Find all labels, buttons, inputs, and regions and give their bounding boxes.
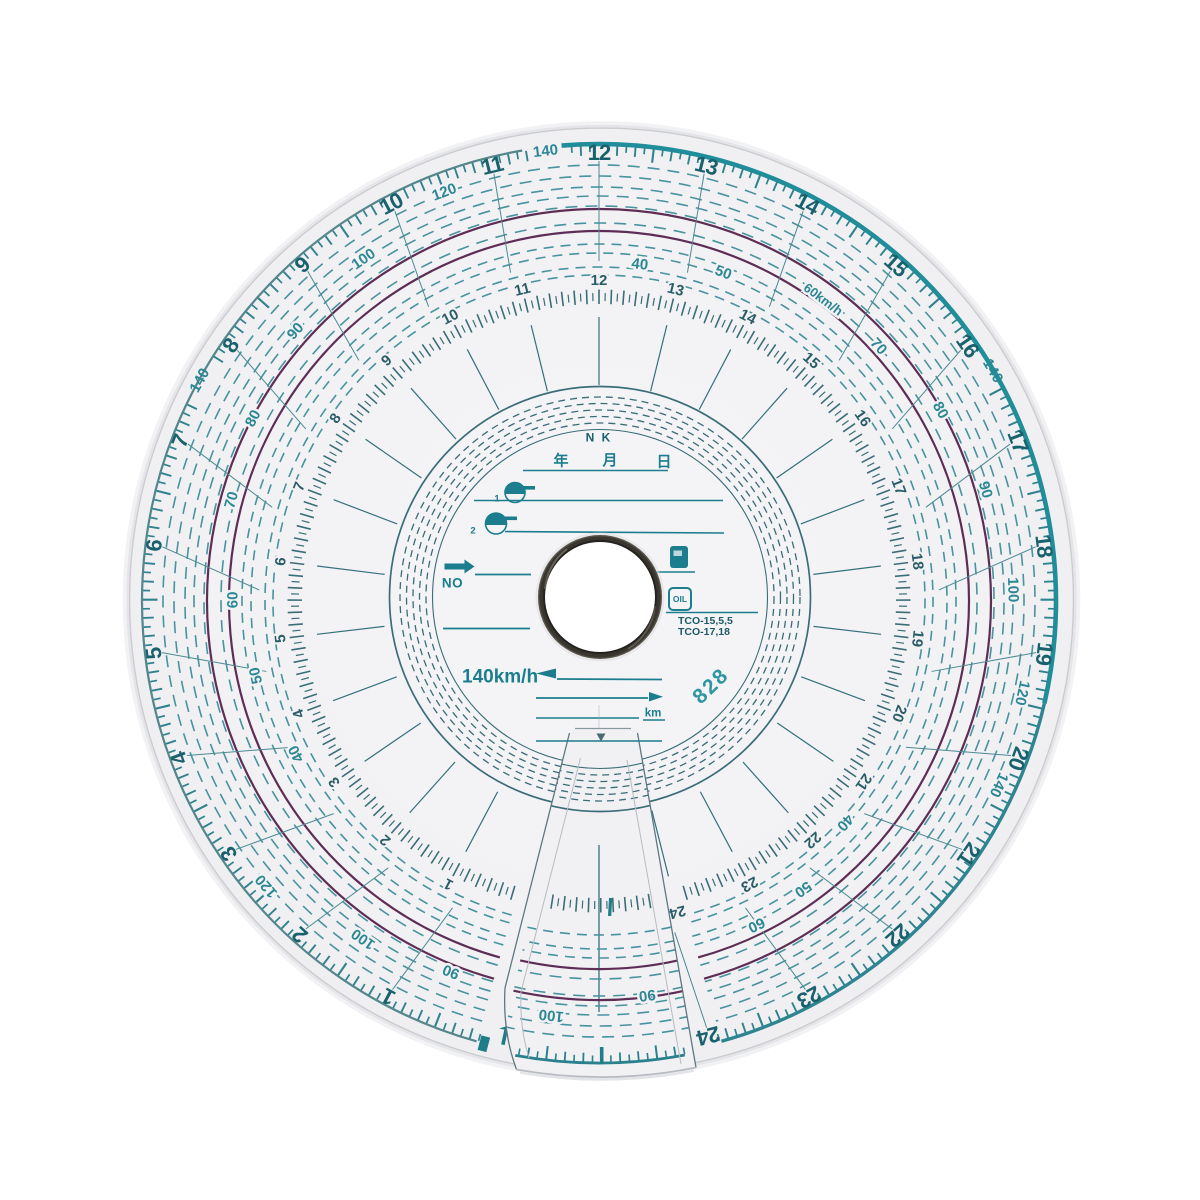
svg-text:km: km — [645, 708, 662, 720]
svg-text:OIL: OIL — [673, 594, 687, 604]
svg-text:60: 60 — [224, 592, 241, 609]
svg-text:NO: NO — [442, 576, 463, 591]
svg-text:50: 50 — [246, 666, 266, 686]
svg-text:年: 年 — [553, 452, 568, 470]
svg-text:100: 100 — [538, 1005, 565, 1025]
svg-text:19: 19 — [1031, 641, 1059, 667]
svg-text:TCO-17,18: TCO-17,18 — [678, 626, 730, 638]
svg-text:40: 40 — [630, 255, 649, 274]
svg-text:19: 19 — [908, 629, 927, 648]
svg-text:N K: N K — [586, 431, 613, 445]
svg-text:12: 12 — [591, 272, 608, 289]
svg-text:100: 100 — [1004, 577, 1022, 602]
svg-text:18: 18 — [1030, 533, 1058, 559]
svg-text:日: 日 — [656, 454, 671, 471]
svg-text:月: 月 — [601, 452, 617, 469]
svg-text:140: 140 — [532, 141, 559, 161]
svg-text:140km/h: 140km/h — [462, 667, 538, 688]
svg-text:90: 90 — [638, 986, 657, 1005]
svg-text:18: 18 — [908, 552, 927, 571]
svg-text:1: 1 — [494, 494, 500, 505]
svg-text:2: 2 — [470, 526, 475, 537]
